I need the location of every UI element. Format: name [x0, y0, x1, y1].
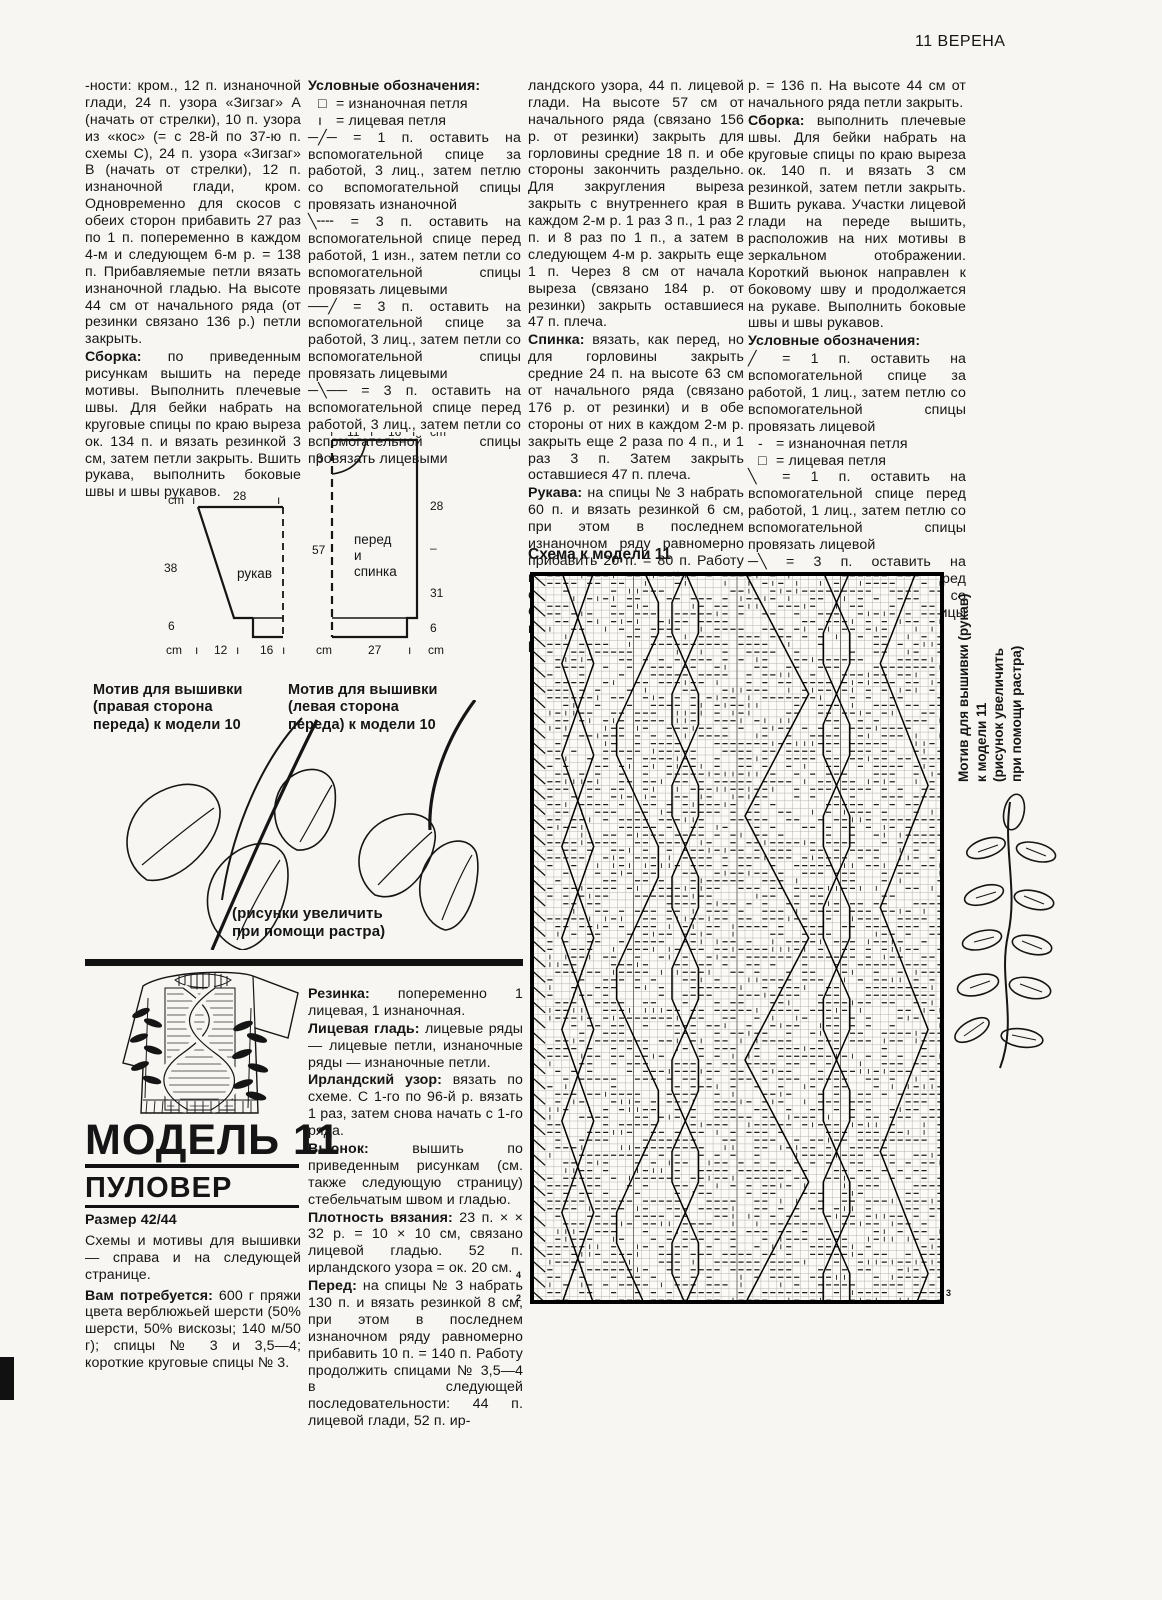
leaf-embroidery — [130, 998, 269, 1108]
column-3: ландского узора, 44 п. лицевой глади. На… — [528, 78, 744, 655]
cm-label: cm — [316, 643, 332, 657]
tick: ı — [330, 432, 333, 439]
tick: ı — [236, 643, 239, 657]
paragraph: ландского узора, 44 п. лицевой глади. На… — [528, 78, 744, 331]
leaf-pair — [962, 881, 1055, 913]
paragraph: р. = 136 п. На высоте 44 см от начальног… — [748, 78, 966, 112]
print-registration-mark — [0, 1357, 14, 1400]
tick: ı — [408, 643, 411, 657]
dim-label: 12 — [214, 643, 228, 657]
sleeve-labels: cm ı 28 ı 38 6 cm ı 12 ı 16 ı рукав — [164, 489, 285, 657]
collar-rib — [175, 973, 231, 990]
dim-label: 31 — [430, 586, 444, 600]
pullover-photo-drawing — [103, 968, 303, 1118]
dim-label: 6 — [168, 619, 175, 633]
tick: ı — [370, 432, 373, 439]
legend-item: ╲ = 1 п. оставить на вспомогательной спи… — [748, 469, 966, 553]
cable-symbol: ──╱ — [308, 299, 337, 316]
paragraph: Перед: на спицы № 3 набрать 130 п. и вяз… — [308, 1278, 523, 1430]
dim-label: 28 — [430, 499, 444, 513]
dim-label: 27 — [368, 643, 382, 657]
subtitle-rule — [85, 1205, 299, 1208]
legend-item: ──╱ = 3 п. оставить на вспомогательной с… — [308, 299, 521, 383]
dim-label: 16 — [388, 432, 402, 439]
dim-label: 28 — [233, 489, 247, 503]
model-title: МОДЕЛЬ 11 — [85, 1116, 341, 1165]
sleeve-motif-caption: Мотив для вышивки (рукав) к модели 11 (р… — [955, 593, 1025, 782]
tick: ı — [277, 493, 280, 507]
tick: – — [430, 541, 437, 555]
body-label: и — [354, 548, 362, 563]
body-text: -ности: кром., 12 п. изнаночной глади, 2… — [85, 78, 301, 347]
raster-note: (рисунки увеличить при помощи растра) — [232, 905, 432, 941]
paragraph: Схемы и мотивы для вышивки — справа и на… — [85, 1233, 301, 1284]
page-header: 11 ВЕРЕНА — [915, 33, 1005, 51]
column-4: р. = 136 п. На высоте 44 см от начальног… — [748, 78, 966, 638]
cm-label: cm — [166, 643, 182, 657]
purl-symbol: - — [758, 436, 772, 453]
tick: ı — [192, 493, 195, 507]
purl-symbol: □ — [318, 96, 332, 113]
dim-label: 38 — [164, 561, 178, 575]
chart-row-number: 3 — [946, 1288, 951, 1298]
dim-label: 16 — [260, 643, 274, 657]
paragraph-lead: Сборка: — [85, 349, 142, 365]
cable-panel — [164, 988, 235, 1110]
cable-symbol: ╱ — [748, 351, 762, 368]
paragraph: Плотность вязания: 23 п. × × 32 р. = 10 … — [308, 1210, 523, 1278]
cable-symbol: ─╱─ — [308, 130, 337, 147]
legend-heading: Условные обозначения: — [308, 78, 521, 95]
chart-title: Схема к модели 11 — [528, 546, 671, 564]
section-divider — [85, 959, 523, 966]
dim-label: 8 — [316, 451, 323, 465]
legend-item: □ = изнаночная петля — [308, 96, 521, 113]
legend-item: □ = лицевая петля — [748, 453, 966, 470]
knitting-chart — [530, 572, 944, 1304]
paragraph: Лицевая гладь: лицевые ряды — лицевые пе… — [308, 1021, 523, 1072]
model-subtitle: ПУЛОВЕР — [85, 1172, 232, 1205]
knit-symbol: ı — [318, 113, 332, 130]
paragraph: Вьюнок: вышить по приведенным рисункам (… — [308, 1141, 523, 1209]
body-label: спинка — [354, 564, 397, 579]
cable-symbol: ╲╌╌ — [308, 214, 334, 231]
dim-label: 11 — [347, 432, 360, 439]
legend-heading: Условные обозначения: — [748, 333, 966, 350]
tick: ı — [282, 643, 285, 657]
column-2-legend: Условные обозначения: □ = изнаночная пет… — [308, 78, 521, 467]
leaf-pair — [964, 833, 1057, 865]
paragraph: Ирландский узор: вязать по схеме. С 1-го… — [308, 1072, 523, 1140]
leaf-pair — [951, 1013, 1044, 1050]
paragraph: Резинка: попеременно 1 лицевая, 1 изнано… — [308, 986, 523, 1020]
tick: ı — [195, 643, 198, 657]
hem-rib — [141, 1100, 258, 1113]
column-2-bottom: Резинка: попеременно 1 лицевая, 1 изнано… — [308, 986, 523, 1431]
cm-label: cm — [428, 643, 444, 657]
magazine-page: 11 ВЕРЕНА -ности: кром., 12 п. изнаночно… — [0, 0, 1162, 1600]
paragraph: Сборка: выполнить плечевые швы. Для бейк… — [748, 113, 966, 333]
cm-label: cm — [168, 493, 184, 507]
legend-item: ─╱─ = 1 п. оставить на вспомогательной с… — [308, 130, 521, 214]
paragraph: Вам потребуется: 600 г пряжи цвета вербл… — [85, 1288, 301, 1372]
cable-symbol: ╲ — [748, 469, 762, 486]
cable-symbol: ─╲── — [308, 383, 347, 400]
legend-item: ı = лицевая петля — [308, 113, 521, 130]
model-info: Размер 42/44 Схемы и мотивы для вышивки … — [85, 1212, 301, 1373]
sleeve-label: рукав — [237, 566, 272, 581]
paragraph: Спинка: вязать, как перед, но для горлов… — [528, 332, 744, 484]
dim-label: 57 — [312, 543, 326, 557]
size-line: Размер 42/44 — [85, 1212, 301, 1229]
legend-item: - = изнаночная петля — [748, 436, 966, 453]
garment-schematic: cm ı 28 ı 38 6 cm ı 12 ı 16 ı рукав ı 11… — [140, 432, 475, 662]
title-rule — [85, 1164, 299, 1168]
knit-symbol: □ — [758, 453, 772, 470]
legend-item: ╱ = 1 п. оставить на вспомогательной спи… — [748, 351, 966, 435]
chart-row-number: 4 — [516, 1270, 521, 1280]
legend-item: ╲╌╌ = 3 п. оставить на вспомогательной с… — [308, 214, 521, 298]
body-label: перед — [354, 532, 392, 547]
dim-label: 6 — [430, 621, 437, 635]
cm-label: cm — [430, 432, 446, 439]
sleeve-branch-motif — [948, 790, 1073, 1070]
chart-row-number: 2 — [516, 1293, 521, 1303]
paragraph: -ности: кром., 12 п. изнаночной глади, 2… — [85, 78, 301, 348]
leaf-pair — [955, 970, 1052, 1002]
tick: ı — [412, 432, 415, 439]
cable-symbol: ─╲ — [748, 554, 767, 571]
